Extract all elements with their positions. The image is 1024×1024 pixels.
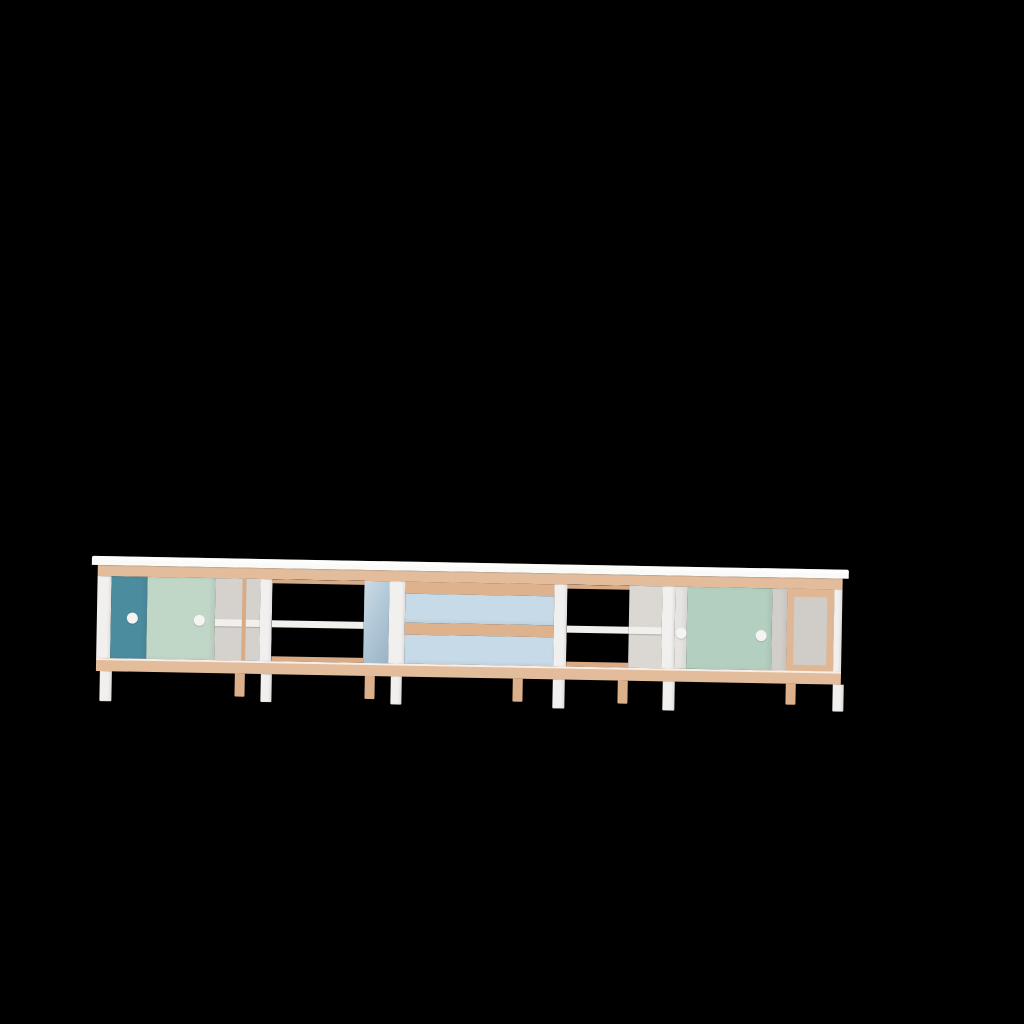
sideboard-render: [95, 556, 843, 716]
right-corner-post: [833, 590, 843, 672]
door-handle: [127, 613, 138, 624]
door-handle: [676, 628, 687, 639]
end-frame-panel: [786, 589, 834, 672]
drawer-top: [405, 594, 555, 626]
leg: [99, 671, 112, 701]
drawer-unit: [404, 582, 554, 667]
carcass-body: [96, 576, 842, 672]
leg: [390, 676, 402, 704]
wood-ceiling: [567, 585, 629, 590]
left-corner-post: [96, 576, 112, 658]
grey-sliding-door: [771, 588, 788, 670]
leg: [260, 674, 272, 702]
leg: [617, 681, 627, 704]
door-handle: [756, 630, 767, 641]
wood-ceiling: [273, 579, 365, 585]
open-shelf-bay-right: [566, 585, 629, 668]
shelf: [272, 620, 364, 629]
leg: [234, 674, 244, 697]
mint-sliding-door-right: [686, 587, 772, 671]
door-handle: [194, 615, 205, 626]
mint-sliding-door-left: [146, 577, 215, 660]
frame-post: [388, 581, 405, 663]
shelf: [629, 627, 662, 635]
drawer-bottom: [404, 635, 554, 667]
leg: [832, 684, 843, 711]
leg: [512, 679, 522, 702]
back-panel: [628, 586, 662, 669]
leg: [552, 679, 565, 708]
shelf: [215, 619, 260, 627]
leg: [364, 676, 374, 699]
open-shelf-bay-left: [271, 579, 364, 663]
leg: [785, 684, 795, 705]
shelf: [567, 626, 629, 634]
leg: [662, 681, 675, 710]
drawer-unit-side-panel: [363, 581, 389, 663]
black-background: [0, 0, 1024, 1024]
wood-divider: [241, 579, 247, 661]
teal-sliding-door: [110, 576, 147, 659]
left-cabinet-interior: [214, 578, 260, 661]
